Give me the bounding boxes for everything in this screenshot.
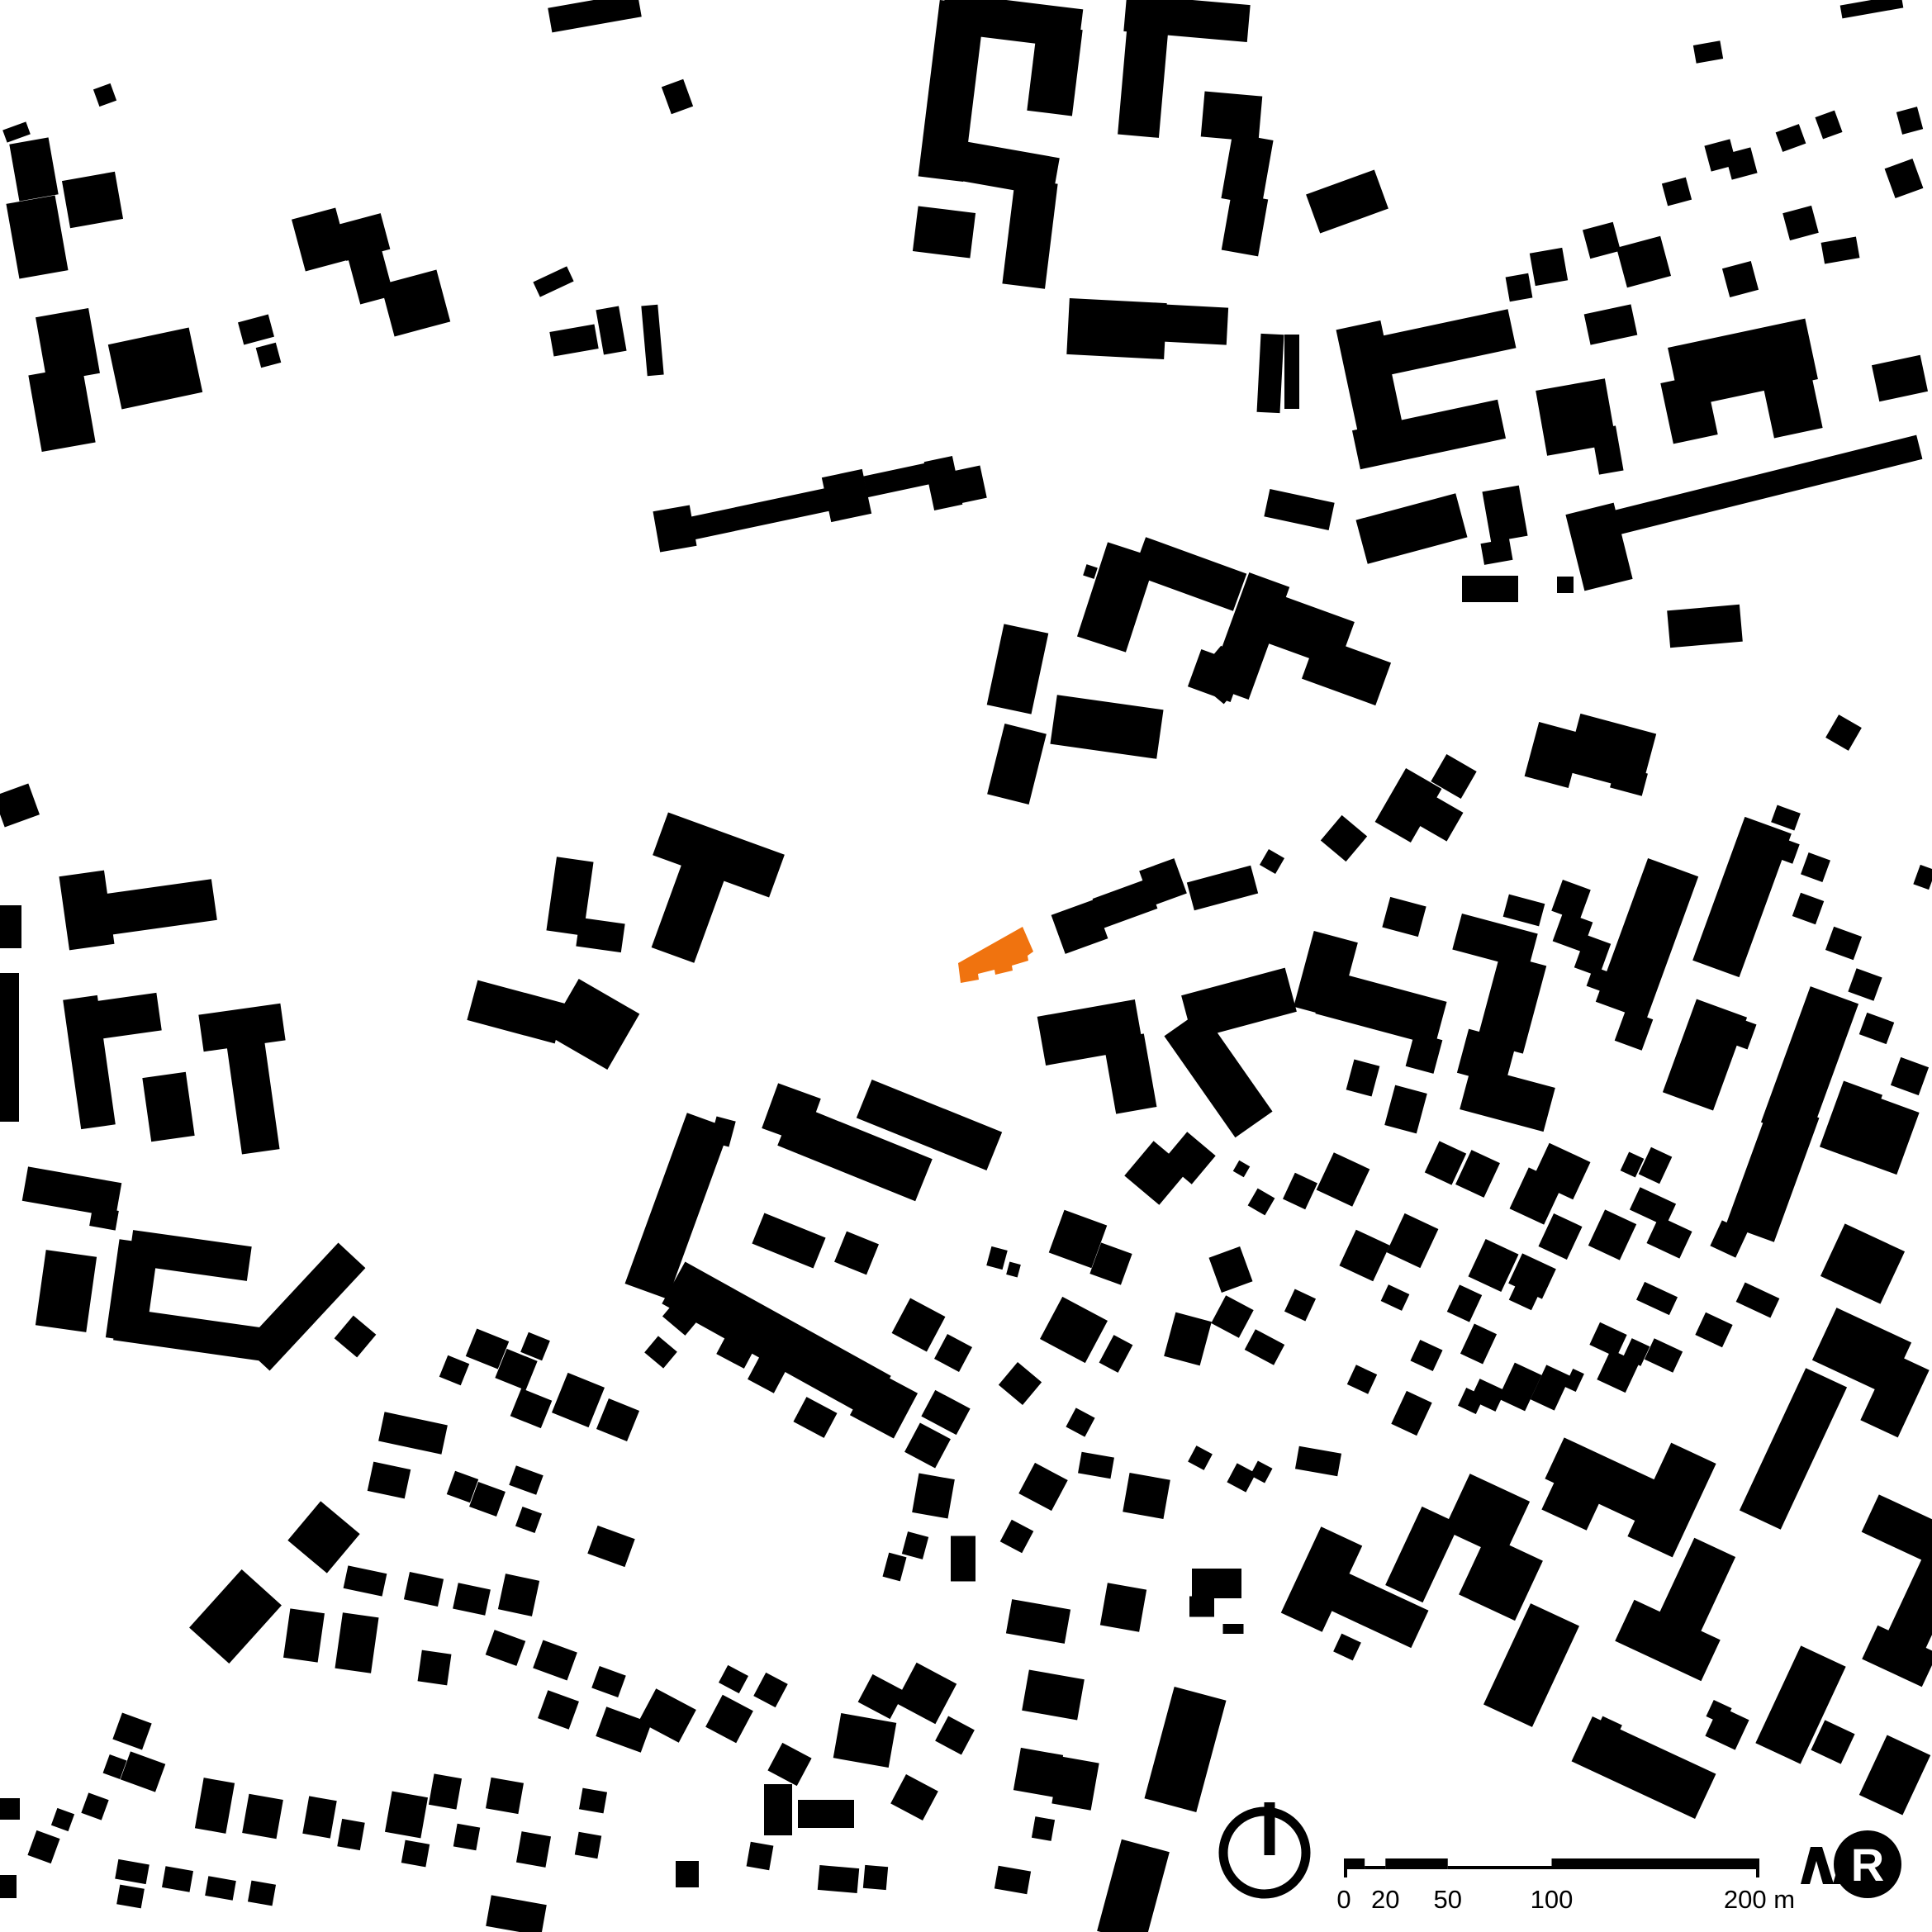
building-footprint [912, 1474, 955, 1519]
building-footprint [1645, 1338, 1683, 1372]
building-footprint [1346, 1060, 1380, 1097]
figure-ground-map: 02050100200 m R [0, 0, 1932, 1932]
building-footprint [1825, 714, 1862, 751]
building-footprint [904, 1422, 951, 1468]
building-footprint [1726, 1100, 1820, 1242]
building-footprint [1588, 1209, 1636, 1260]
building-footprint [1260, 849, 1284, 874]
building-footprint [752, 1213, 825, 1268]
building-footprint [1825, 927, 1862, 961]
building-footprint [1391, 1391, 1431, 1436]
building-footprint [368, 1462, 411, 1499]
building-footprint [753, 1673, 788, 1707]
building-footprint [902, 1531, 928, 1559]
building-footprint [1227, 1463, 1256, 1492]
building-footprint [1821, 236, 1860, 263]
building-footprint [1223, 1624, 1244, 1634]
building-footprint [429, 1773, 462, 1809]
building-footprint [486, 1895, 547, 1932]
building-footprint [81, 1792, 108, 1820]
building-footprint [1097, 1839, 1170, 1932]
building-footprint [287, 1501, 359, 1573]
building-footprint [256, 343, 282, 368]
building-footprint [591, 1666, 626, 1697]
building-footprint [764, 1784, 792, 1835]
building-footprint [533, 266, 573, 297]
building-footprint [1317, 1152, 1370, 1207]
building-footprint [719, 1665, 748, 1693]
building-footprint [793, 1397, 837, 1438]
building-footprint [1257, 334, 1284, 413]
building-footprint [225, 1034, 279, 1154]
building-footprint [1460, 1066, 1555, 1132]
building-footprint [596, 306, 626, 354]
building-footprint [418, 1650, 452, 1686]
building-footprint [439, 1355, 469, 1385]
building-footprint [1356, 493, 1468, 563]
building-footprint [2, 121, 31, 142]
building-footprint [533, 1640, 577, 1681]
building-footprint [552, 1373, 605, 1427]
building-footprint [986, 1246, 1008, 1270]
north-arrow-icon [1223, 1802, 1306, 1894]
building-footprint [335, 1612, 378, 1673]
building-footprint [1006, 1261, 1021, 1277]
building-footprint [1284, 1289, 1316, 1321]
building-footprint [1667, 605, 1743, 648]
building-footprint [381, 270, 450, 337]
building-footprint [401, 1840, 430, 1868]
building-footprint [195, 1778, 235, 1834]
building-footprint [162, 1866, 193, 1892]
building-footprint [1233, 1161, 1250, 1177]
building-footprint [576, 918, 624, 952]
building-footprint [1462, 576, 1518, 602]
building-footprint [1027, 25, 1082, 116]
building-footprint [116, 1885, 145, 1909]
building-footprint [1209, 1246, 1253, 1293]
scale-label: 20 [1371, 1885, 1399, 1914]
building-footprint [767, 1743, 811, 1786]
building-footprint [108, 327, 202, 409]
building-footprint [1740, 1368, 1847, 1529]
building-footprint [1066, 1407, 1094, 1436]
scale-label: 50 [1434, 1885, 1462, 1914]
building-footprint [1333, 1634, 1361, 1661]
building-footprint [1188, 1445, 1213, 1470]
building-footprint [1066, 298, 1166, 359]
building-footprint [89, 1206, 119, 1230]
building-footprint [1245, 1329, 1284, 1365]
building-footprint [1762, 372, 1822, 439]
building-footprint [1596, 858, 1698, 1020]
building-footprint [1295, 1446, 1341, 1477]
building-footprint [1022, 1669, 1085, 1720]
building-footprint [1387, 1213, 1439, 1268]
building-footprint [1639, 1147, 1673, 1184]
building-footprint [105, 879, 217, 935]
building-footprint [515, 1507, 542, 1533]
building-footprint [987, 724, 1047, 805]
building-footprint [335, 1316, 377, 1358]
building-footprint [949, 465, 986, 504]
building-footprint [27, 1830, 59, 1863]
building-footprint [0, 1875, 17, 1898]
building-footprint [337, 1819, 364, 1850]
building-footprint [1564, 1369, 1584, 1392]
building-footprint [1572, 1716, 1716, 1819]
building-footprint [935, 1716, 975, 1755]
building-footprint [453, 1824, 480, 1850]
building-footprint [344, 1565, 387, 1596]
building-footprint [1104, 1033, 1157, 1113]
building-footprint [1616, 236, 1671, 288]
building-footprint [59, 871, 115, 951]
building-footprint [1792, 893, 1824, 924]
building-footprint [1132, 537, 1247, 611]
building-footprint [93, 83, 116, 107]
building-footprint [404, 1572, 444, 1607]
building-footprint [1695, 1313, 1732, 1347]
building-footprint [1123, 1473, 1170, 1519]
building-footprint [1221, 133, 1273, 205]
building-footprint [242, 1794, 283, 1839]
building-footprint [1248, 1189, 1275, 1216]
building-footprint [1187, 866, 1258, 911]
building-footprint [1820, 1223, 1905, 1303]
building-footprint [833, 1713, 897, 1768]
building-footprint [115, 1859, 150, 1884]
building-footprint [142, 1072, 194, 1142]
logo-letter: R [1851, 1839, 1884, 1891]
building-footprint [1872, 355, 1928, 401]
building-footprint [509, 1465, 543, 1494]
building-footprint [510, 1388, 553, 1428]
building-footprint [1815, 111, 1842, 140]
building-footprint [1347, 1365, 1377, 1393]
building-footprint [516, 1831, 551, 1868]
building-footprint [798, 1800, 854, 1828]
building-footprint [1302, 636, 1391, 705]
logo-lambda-glyph [1801, 1847, 1834, 1884]
building-footprint [596, 1398, 639, 1441]
building-footprint [1384, 1085, 1427, 1134]
building-footprint [243, 1242, 366, 1370]
building-footprint [895, 1663, 957, 1724]
building-footprint [1264, 489, 1334, 530]
building-footprint [1410, 1340, 1442, 1371]
building-footprint [0, 1798, 20, 1820]
building-footprint [1006, 1599, 1070, 1644]
building-footprint [1144, 1687, 1226, 1812]
building-footprint [486, 1778, 524, 1814]
building-footprint [892, 1298, 946, 1352]
building-footprint [549, 324, 598, 356]
building-footprint [1662, 178, 1692, 206]
building-footprint [994, 1866, 1031, 1895]
building-footprint [1722, 261, 1759, 297]
building-footprint [1460, 1324, 1497, 1365]
building-footprint [575, 1832, 601, 1858]
building-footprint [1211, 1295, 1253, 1337]
building-footprint [112, 1713, 151, 1750]
building-footprint [1032, 1816, 1055, 1841]
building-footprint [834, 1232, 879, 1275]
logo-slash-glyph [1833, 1844, 1854, 1884]
building-footprint [987, 624, 1049, 714]
building-footprint [1161, 304, 1228, 344]
building-footprint [1250, 1460, 1272, 1483]
building-footprint [818, 1865, 859, 1893]
building-footprint [1583, 222, 1621, 259]
building-footprint [0, 973, 19, 1122]
building-footprint [1557, 577, 1574, 593]
building-footprint [378, 1412, 448, 1454]
building-footprint [1646, 1216, 1692, 1258]
building-footprint [710, 1116, 735, 1146]
building-footprint [644, 1336, 677, 1368]
building-footprint [238, 315, 274, 345]
logo: R [1801, 1830, 1901, 1898]
scale-label: 100 [1531, 1885, 1574, 1914]
building-footprint [1189, 1597, 1214, 1617]
building-footprint [1885, 159, 1924, 198]
building-footprint [1040, 1297, 1108, 1363]
building-footprint [547, 979, 640, 1070]
building-footprint [36, 1250, 97, 1332]
building-footprint [587, 1526, 634, 1567]
building-footprint [999, 1362, 1042, 1405]
building-footprint [0, 905, 21, 948]
building-footprint [579, 1788, 607, 1814]
building-footprint [1531, 1365, 1570, 1410]
building-footprint [1859, 1013, 1894, 1044]
building-footprint [1306, 169, 1388, 233]
building-footprint [1506, 273, 1533, 301]
building-footprint [62, 172, 123, 228]
scale-label: 200 m [1724, 1885, 1795, 1914]
building-footprint [641, 305, 663, 376]
building-footprint [1482, 486, 1527, 543]
building-footprint [1530, 248, 1568, 286]
building-footprint [1862, 1494, 1932, 1563]
building-footprint [747, 1842, 774, 1870]
building-footprint [6, 195, 68, 278]
building-footprint [1315, 970, 1446, 1046]
building-footprint [1776, 124, 1806, 152]
building-footprint [1051, 1756, 1099, 1810]
building-footprint [913, 206, 975, 258]
building-footprint [453, 1583, 491, 1616]
scale-label: 0 [1336, 1885, 1351, 1914]
building-footprint [1589, 1322, 1626, 1357]
building-footprint [1050, 695, 1163, 759]
building-footprint [0, 784, 40, 828]
building-footprint [1483, 1603, 1579, 1727]
building-footprint [498, 1574, 539, 1616]
building-footprint [863, 1865, 888, 1890]
building-footprint [121, 1751, 166, 1792]
building-footprint [1782, 206, 1819, 240]
building-footprint [302, 1796, 336, 1838]
building-footprint [1164, 1313, 1212, 1366]
building-footprint [1222, 193, 1268, 257]
building-footprint [1284, 335, 1299, 409]
building-footprint [113, 1308, 263, 1360]
building-footprint [9, 137, 58, 201]
logo-circle [1834, 1830, 1901, 1898]
building-footprint [951, 1536, 975, 1582]
building-footprint [1099, 1335, 1133, 1373]
building-footprint [1018, 1463, 1067, 1511]
building-footprint [248, 1881, 276, 1906]
building-footprint [51, 1808, 74, 1831]
building-footprint [189, 1569, 282, 1664]
building-footprint [1591, 425, 1623, 474]
building-footprint [1771, 805, 1801, 831]
building-footprint [1636, 1282, 1678, 1315]
building-footprint [1503, 895, 1545, 927]
building-footprint [676, 1861, 699, 1887]
building-footprint [1896, 107, 1923, 135]
building-footprint [1840, 0, 1904, 18]
building-footprint [934, 1334, 972, 1372]
building-footprint [1801, 852, 1830, 882]
building-footprint [1382, 897, 1426, 937]
building-footprint [890, 1774, 938, 1820]
building-footprint [882, 1553, 906, 1582]
building-footprint [1848, 968, 1882, 1000]
building-footprint [1584, 304, 1638, 344]
building-footprint [705, 1695, 753, 1744]
building-footprint [205, 1876, 236, 1901]
building-footprint [28, 366, 95, 452]
building-footprint [1381, 1284, 1410, 1311]
building-footprint [662, 79, 693, 114]
building-footprint [1725, 147, 1757, 179]
building-footprint [385, 1792, 428, 1839]
building-footprint [283, 1608, 325, 1662]
building-footprint [1321, 815, 1367, 862]
building-footprint [1078, 1452, 1114, 1479]
building-footprint [1283, 1173, 1317, 1209]
building-footprint [1859, 1735, 1930, 1815]
building-footprint [1891, 1057, 1929, 1095]
building-footprint [1913, 865, 1932, 890]
highlighted-building [958, 927, 1033, 983]
building-footprint [1447, 1284, 1482, 1322]
building-footprint [538, 1690, 579, 1730]
building-footprint [548, 0, 642, 32]
building-footprint [652, 854, 729, 963]
building-footprint [1580, 435, 1923, 544]
building-footprint [1693, 40, 1723, 63]
building-footprint [1002, 178, 1057, 288]
building-footprint [486, 1630, 526, 1666]
building-footprint [1481, 539, 1513, 565]
scale-bar: 02050100200 m [1336, 1858, 1795, 1914]
building-footprint [1100, 1583, 1146, 1632]
building-footprint [1339, 1230, 1389, 1282]
building-footprint [1000, 1520, 1034, 1554]
building-footprint [1192, 1569, 1241, 1598]
building-footprint [1736, 1282, 1780, 1317]
building-footprint [662, 1262, 890, 1418]
